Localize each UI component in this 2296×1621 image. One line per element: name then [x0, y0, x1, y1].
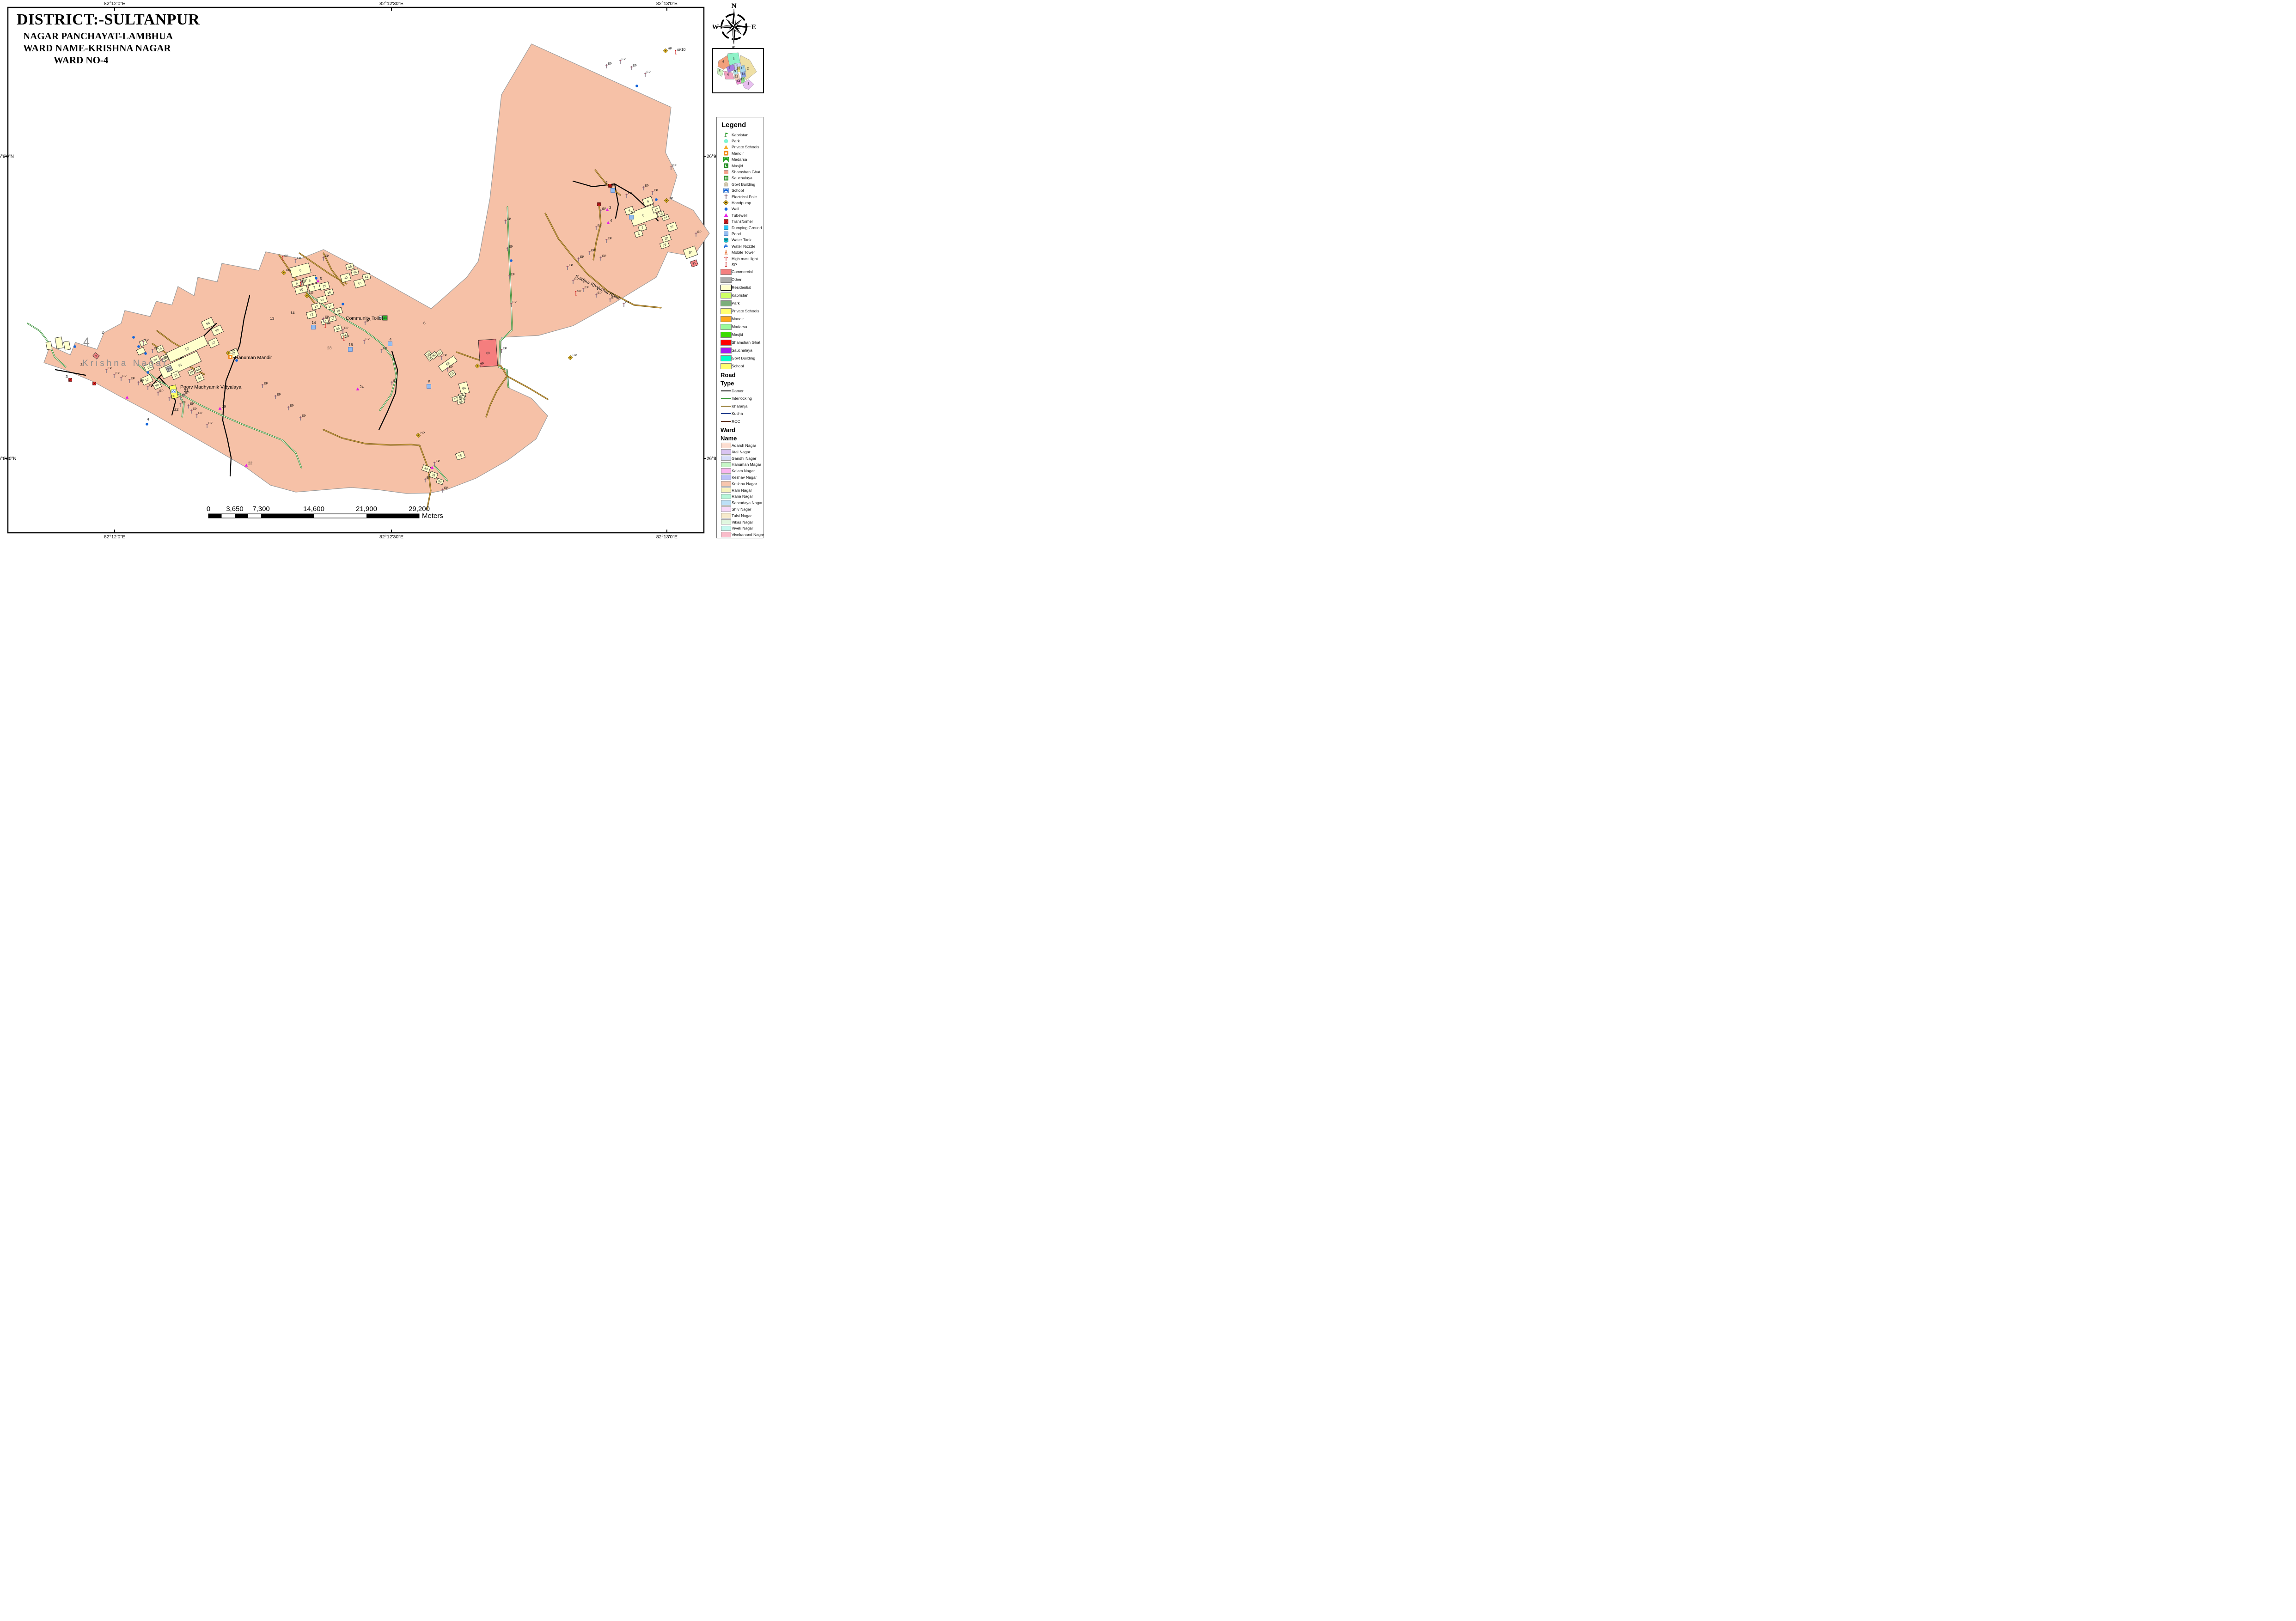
legend-road-kharanja: Kharanja	[721, 402, 763, 410]
svg-text:HP: HP	[309, 292, 313, 295]
pond-icon	[723, 231, 729, 237]
well-marker	[132, 336, 135, 339]
ward-name-on-map: Krishna Nagar	[82, 359, 168, 368]
ep-marker: EP	[619, 58, 625, 64]
road-line-swatch	[721, 421, 731, 422]
svg-text:24: 24	[360, 385, 364, 389]
legend-item-label: Mobile Tower	[732, 250, 755, 255]
graticule-top-label: 82°12'30"E	[379, 1, 403, 6]
electrical-pole-icon	[723, 194, 729, 200]
tr-marker: 3	[66, 374, 72, 381]
legend-item-label: Keshav Nagar	[732, 475, 757, 480]
mandir-icon	[723, 150, 729, 156]
svg-text:9: 9	[631, 211, 633, 215]
svg-text:SP: SP	[577, 290, 581, 293]
map-number-label: 14	[290, 311, 295, 315]
legend-item-label: Residential	[732, 285, 751, 290]
scale-tick-label: 0	[207, 505, 210, 513]
legend-polygon-private-schools: Private Schools	[721, 307, 763, 315]
legend-polygon-residential: Residential	[721, 284, 763, 292]
svg-text:SP: SP	[677, 49, 681, 52]
legend-item-label: High mast light	[732, 256, 758, 261]
graticule-bottom-label: 82°12'30"E	[379, 534, 403, 540]
well-marker	[315, 277, 318, 280]
handpump-icon	[723, 200, 729, 206]
legend-ward-gandhi-nagar: Gandhi Nagar	[721, 455, 763, 462]
svg-text:EP: EP	[383, 347, 387, 350]
legend-ward-adarsh-nagar: Adarsh Nagar	[721, 442, 763, 449]
color-swatch	[721, 332, 732, 338]
ward-color-swatch	[721, 519, 731, 525]
legend-item-madarsa: Madarsa	[721, 157, 763, 163]
legend-item-label: Vikas Nagar	[732, 520, 753, 524]
svg-text:EP: EP	[628, 192, 632, 195]
legend-item-label: Tubewell	[732, 213, 747, 218]
svg-text:EP: EP	[509, 245, 513, 249]
sauchalaya-icon	[723, 175, 729, 181]
legend-item-well: Well	[721, 206, 763, 212]
svg-text:EP: EP	[585, 286, 589, 289]
legend-item-label: School	[732, 364, 744, 368]
svg-text:EP: EP	[507, 218, 511, 221]
legend-polygon-madarsa: Madarsa	[721, 323, 763, 331]
svg-text:3: 3	[66, 374, 68, 379]
ward-color-swatch	[721, 526, 731, 531]
legend-item-label: Masjid	[732, 164, 743, 168]
svg-text:EP: EP	[602, 255, 606, 258]
mandir-icon	[228, 355, 232, 359]
inset-ward-11: 11	[734, 73, 740, 80]
parcel: 43	[383, 316, 387, 320]
compass-rose-icon: N S W E	[713, 3, 757, 51]
ward-color-swatch	[721, 462, 731, 468]
svg-text:EP: EP	[608, 62, 612, 66]
svg-text:2: 2	[605, 180, 608, 185]
color-swatch	[721, 355, 732, 361]
legend-item-label: Vivekanand Nagar	[732, 532, 764, 537]
legend-item-label: Park	[732, 139, 740, 143]
svg-text:EP: EP	[511, 273, 515, 276]
svg-text:EP: EP	[325, 316, 329, 319]
legend-ward-heading-1: Ward	[721, 427, 763, 433]
svg-text:EP: EP	[325, 255, 329, 258]
scale-bar: 03,6507,30014,60021,90029,200Meters	[207, 505, 443, 520]
inset-ward-number: 15	[741, 78, 745, 81]
scale-unit-label: Meters	[422, 512, 443, 520]
legend-title: Legend	[721, 121, 763, 129]
legend-item-label: Water Nozzle	[732, 244, 755, 249]
svg-text:EP: EP	[366, 338, 370, 341]
legend-item-label: Handpump	[732, 201, 751, 205]
inset-ward-number: 12	[741, 67, 745, 70]
legend-panel: Legend KabristanParkPrivate SchoolsMandi…	[716, 117, 763, 538]
compass-north-label: N	[732, 3, 737, 10]
legend-item-label: Govt Building	[732, 356, 755, 360]
svg-text:3: 3	[609, 206, 611, 210]
legend-item-label: Adarsh Nagar	[732, 443, 756, 448]
svg-text:22: 22	[248, 461, 252, 465]
ward-color-swatch	[721, 475, 731, 480]
legend-item-label: Mandir	[732, 151, 744, 156]
legend-polygon-sauchalaya: Sauchalaya	[721, 347, 763, 354]
svg-text:EP: EP	[598, 224, 602, 227]
legend-ward-vivekanand-nagar: Vivekanand Nagar	[721, 531, 763, 538]
svg-text:EP: EP	[591, 249, 595, 252]
svg-text:EP: EP	[297, 257, 301, 260]
svg-text:EP: EP	[290, 404, 294, 408]
well-marker	[146, 423, 148, 426]
well-marker	[635, 85, 638, 87]
svg-text:19: 19	[222, 404, 226, 408]
legend-item-label: Private Schools	[732, 309, 759, 313]
svg-text:EP: EP	[608, 237, 612, 240]
legend-item-mandir: Mandir	[721, 150, 763, 156]
svg-text:EP: EP	[449, 366, 453, 369]
inset-ward-number: 10	[737, 67, 740, 71]
svg-text:EP: EP	[154, 347, 158, 350]
svg-text:HP: HP	[669, 197, 673, 200]
road-line-swatch	[721, 398, 731, 399]
inset-ward-number: 7	[729, 67, 731, 70]
map-sheet: { "title_block": { "district": "DISTRICT…	[0, 0, 765, 540]
color-swatch	[721, 285, 732, 291]
graticule-left-label: 26°8'30"N	[0, 457, 17, 462]
ep-marker: EP	[623, 301, 629, 307]
legend-polygon-mandir: Mandir	[721, 315, 763, 323]
legend-ward-sarvodaya-nagar: Sarvodaya Nagar	[721, 500, 763, 506]
legend-item-label: Pond	[732, 232, 741, 236]
svg-text:EP: EP	[625, 301, 629, 304]
ward-color-swatch	[721, 443, 731, 448]
svg-text:EP: EP	[131, 377, 135, 380]
svg-text:EP: EP	[198, 412, 202, 415]
legend-ward-shiv-nagar: Shiv Nagar	[721, 506, 763, 512]
legend-item-label: Well	[732, 207, 739, 211]
ward-index-inset-map: 123456789101112131415	[712, 48, 764, 93]
poi-label: Community Toilet	[346, 316, 383, 321]
svg-text:EP: EP	[122, 375, 127, 378]
legend-item-school: School	[721, 188, 763, 194]
well-marker	[342, 303, 344, 305]
legend-item-water-nozzle: Water Nozzle	[721, 243, 763, 249]
map-number-label: 13	[270, 316, 275, 321]
ward-color-swatch	[721, 500, 731, 506]
legend-item-kabristan: Kabristan	[721, 132, 763, 138]
legend-item-govt-building: Govt Building	[721, 181, 763, 187]
color-swatch	[721, 363, 732, 369]
svg-text:EP: EP	[193, 408, 197, 411]
svg-text:HP: HP	[480, 362, 484, 366]
svg-text:EP: EP	[672, 164, 677, 167]
svg-text:EP: EP	[116, 372, 120, 375]
legend-item-high-mast-light: High mast light	[721, 256, 763, 262]
svg-text:EP: EP	[580, 256, 584, 259]
legend-polygon-commercial: Commercial	[721, 268, 763, 276]
color-swatch	[721, 277, 732, 283]
color-swatch	[721, 308, 732, 314]
svg-text:5: 5	[612, 184, 615, 188]
svg-text:EP: EP	[190, 402, 194, 406]
svg-text:14: 14	[312, 321, 316, 325]
tr-marker	[93, 382, 96, 385]
legend-item-handpump: Handpump	[721, 200, 763, 206]
parcel-number: 43	[383, 317, 387, 320]
inset-ward-number: 6	[727, 73, 729, 76]
legend-item-label: Rana Nagar	[732, 494, 753, 499]
map-number-label: 2	[102, 330, 104, 335]
color-swatch	[721, 316, 732, 322]
svg-text:EP: EP	[436, 460, 440, 463]
legend-polygon-other: Other	[721, 276, 763, 284]
legend-item-transformer: Transformer	[721, 218, 763, 224]
scale-tick-label: 14,600	[303, 505, 324, 513]
ep-marker: EP	[605, 62, 611, 68]
svg-text:5: 5	[428, 380, 431, 384]
shamshan-ghat-icon	[723, 169, 729, 175]
water-tank-icon	[723, 237, 729, 243]
inset-ward-number: 11	[735, 75, 738, 78]
legend-polygon-govt-building: Govt Building	[721, 354, 763, 362]
svg-text:EP: EP	[145, 339, 149, 342]
parcel	[46, 341, 52, 350]
legend-polygon-school: School	[721, 362, 763, 370]
masjid-icon	[723, 163, 729, 169]
legend-item-label: Krishna Nagar	[732, 481, 757, 486]
svg-text:HP: HP	[573, 354, 577, 357]
svg-text:EP: EP	[602, 207, 606, 211]
svg-text:EP: EP	[149, 384, 153, 387]
private-school-icon	[723, 144, 729, 150]
legend-item-water-tank: Water Tank	[721, 237, 763, 243]
legend-item-mobile-tower: Mobile Tower	[721, 249, 763, 255]
inset-ward-number: 13	[742, 73, 745, 76]
hp-marker: HP	[663, 47, 672, 53]
legend-item-label: Private Schools	[732, 145, 759, 149]
hp-marker: HP	[568, 354, 577, 360]
legend-item-label: Shamshan Ghat	[732, 340, 760, 345]
legend-item-sp: SP	[721, 262, 763, 268]
legend-item-masjid: Masjid	[721, 163, 763, 169]
graticule-top-label: 82°13'0"E	[656, 1, 678, 6]
well-marker	[73, 345, 76, 348]
parcel-number: 69	[486, 352, 490, 355]
svg-text:EP: EP	[633, 64, 637, 67]
legend-item-label: Vivek Nagar	[732, 526, 753, 530]
legend-ward-ram-nagar: Ram Nagar	[721, 487, 763, 494]
ep-marker: EP	[630, 64, 636, 70]
legend-item-label: Sauchalaya	[732, 176, 752, 180]
legend-ward-vivek-nagar: Vivek Nagar	[721, 525, 763, 531]
legend-item-label: Gandhi Nagar	[732, 456, 757, 461]
legend-ward-vikas-nagar: Vikas Nagar	[721, 519, 763, 525]
svg-text:SP: SP	[284, 255, 288, 258]
map-number-label: 10	[681, 47, 686, 52]
compass-east-label: E	[751, 24, 756, 31]
inset-ward-number: 4	[722, 61, 724, 64]
legend-ward-tulsi-nagar: Tulsi Nagar	[721, 512, 763, 519]
legend-item-label: Kabristan	[732, 133, 748, 137]
legend-road-interlocking: Interlocking	[721, 395, 763, 402]
svg-text:EP: EP	[277, 393, 281, 396]
map-number-label: 22	[174, 407, 179, 412]
ward-color-swatch	[721, 506, 731, 512]
svg-text:EP: EP	[171, 395, 175, 398]
school-icon	[723, 188, 729, 194]
legend-item-label: Madarsa	[732, 324, 747, 329]
svg-text:EP: EP	[302, 414, 306, 418]
legend-item-label: Park	[732, 301, 740, 305]
svg-text:EP: EP	[444, 487, 448, 490]
well-marker	[655, 198, 658, 201]
svg-text:4: 4	[610, 219, 612, 223]
graticule-bottom-label: 82°12'0"E	[104, 534, 125, 540]
well-icon	[723, 206, 729, 212]
sp-icon	[723, 262, 729, 268]
ward-color-swatch	[721, 449, 731, 455]
legend-item-label: Sauchalaya	[732, 348, 752, 353]
svg-text:EP: EP	[513, 301, 517, 304]
well-marker	[137, 345, 140, 348]
legend-item-label: Atal Nagar	[732, 450, 751, 454]
transformer-icon	[723, 219, 729, 225]
inset-ward-number: 3	[733, 58, 735, 61]
ep-marker: EP	[644, 71, 650, 77]
legend-item-label: Masjid	[732, 332, 743, 337]
svg-text:EP: EP	[344, 327, 348, 330]
color-swatch	[721, 269, 732, 275]
legend-ward-hanuman-magar: Hanuman Magar	[721, 461, 763, 468]
legend-item-pond: Pond	[721, 231, 763, 237]
svg-text:EP: EP	[503, 347, 507, 350]
legend-item-label: SP	[732, 262, 737, 267]
park-icon	[723, 138, 729, 144]
color-swatch	[721, 347, 732, 353]
svg-text:EP: EP	[393, 379, 397, 383]
svg-text:EP: EP	[622, 58, 626, 61]
school-icon	[171, 390, 176, 393]
legend-item-tubewell: Tubewell	[721, 212, 763, 218]
ward-color-swatch	[721, 456, 731, 461]
legend-road-heading-2: Type	[721, 380, 763, 387]
legend-polygon-shamshan-ghat: Shamshan Ghat	[721, 339, 763, 347]
svg-text:EP: EP	[654, 189, 658, 192]
svg-text:EP: EP	[645, 184, 649, 188]
ward-color-swatch	[721, 481, 731, 487]
inset-ward-number: 1	[747, 82, 749, 85]
svg-text:5: 5	[320, 277, 322, 281]
map-number-label: 6	[423, 321, 426, 325]
high-mast-light-icon	[723, 256, 729, 262]
tr-marker	[598, 203, 601, 206]
legend-item-label: Shamshan Ghat	[732, 170, 760, 174]
svg-text:EP: EP	[264, 382, 268, 385]
graticule-top-label: 82°12'0"E	[104, 1, 125, 6]
map-number-label: 23	[327, 346, 332, 350]
ward-color-swatch	[721, 468, 731, 474]
parcel	[64, 341, 71, 350]
svg-text:EP: EP	[208, 422, 213, 425]
legend-item-label: Water Tank	[732, 238, 751, 242]
svg-text:EP: EP	[647, 71, 651, 74]
legend-road-heading-1: Road	[721, 372, 763, 378]
road-line-swatch	[721, 413, 731, 414]
poi-label: Hanuman Mandir	[235, 355, 272, 360]
parcel	[55, 337, 63, 349]
legend-item-sauchalaya: Sauchalaya	[721, 175, 763, 181]
road-line-swatch	[721, 390, 731, 391]
legend-ward-krishna-nagar: Krishna Nagar	[721, 481, 763, 487]
pond-marker: 14	[311, 321, 316, 329]
legend-item-label: Ram Nagar	[732, 488, 752, 493]
svg-text:4: 4	[390, 337, 392, 341]
legend-item-label: Commercial	[732, 269, 753, 274]
legend-item-dumping-ground: Dumping Ground	[721, 225, 763, 231]
madarsa-icon	[723, 157, 729, 163]
parcel: 31	[690, 260, 698, 267]
kabristan-flag-icon	[723, 132, 729, 138]
svg-text:HP: HP	[421, 432, 425, 435]
legend-item-label: Sarvodaya Nagar	[732, 500, 763, 505]
legend-item-label: Kucha	[732, 411, 743, 416]
mobile-tower-icon	[723, 250, 729, 256]
legend-item-label: Tulsi Nagar	[732, 513, 752, 518]
poi-label: Poorv Madhyamik Vidyalaya	[180, 384, 241, 390]
svg-text:HP: HP	[286, 269, 290, 272]
legend-item-electrical-pole: Electrical Pole	[721, 194, 763, 200]
legend-ward-rana-nagar: Rana Nagar	[721, 493, 763, 500]
ward-color-swatch	[721, 488, 731, 493]
svg-text:SP: SP	[345, 335, 349, 338]
svg-text:SP: SP	[327, 322, 331, 325]
legend-ward-atal-nagar: Atal Nagar	[721, 449, 763, 455]
svg-text:EP: EP	[697, 231, 702, 234]
svg-text:16: 16	[349, 343, 353, 347]
legend-polygon-kabristan: Kabristan	[721, 292, 763, 299]
legend-item-label: Madarsa	[732, 157, 747, 162]
road-line-swatch	[721, 406, 731, 407]
govt-building-icon	[723, 181, 729, 187]
svg-text:HP: HP	[231, 349, 235, 353]
color-swatch	[721, 340, 732, 346]
legend-item-label: Kalam Nagar	[732, 469, 755, 473]
ward-number-on-map: 4	[83, 335, 90, 348]
legend-item-label: School	[732, 188, 744, 193]
map-number-label: 4	[147, 417, 149, 421]
map-canvas: 82°12'0"E82°12'30"E82°13'0"E82°12'0"E82°…	[0, 0, 765, 540]
pond-marker: 16	[348, 343, 353, 352]
legend-item-shamshan-ghat: Shamshan Ghat	[721, 169, 763, 175]
legend-item-label: RCC	[732, 419, 740, 424]
legend-item-label: Other	[732, 277, 742, 282]
dumping-ground-icon	[723, 225, 729, 231]
legend-item-label: Transformer	[732, 219, 753, 224]
legend-item-label: Interlocking	[732, 396, 752, 401]
legend-item-label: Govt Building	[732, 182, 755, 187]
legend-polygon-masjid: Masjid	[721, 331, 763, 339]
svg-text:EP: EP	[140, 379, 144, 383]
legend-road-rcc: RCC	[721, 418, 763, 426]
svg-text:EP: EP	[427, 476, 431, 480]
ward-color-swatch	[721, 513, 731, 518]
scale-tick-label: 7,300	[252, 505, 270, 513]
color-swatch	[721, 324, 732, 330]
inset-ward-number: 2	[747, 67, 749, 71]
color-swatch	[721, 293, 732, 299]
legend-ward-heading-2: Name	[721, 435, 763, 442]
ward-color-swatch	[721, 494, 731, 500]
svg-text:EP: EP	[443, 354, 447, 357]
legend-road-damer: Damer	[721, 387, 763, 395]
